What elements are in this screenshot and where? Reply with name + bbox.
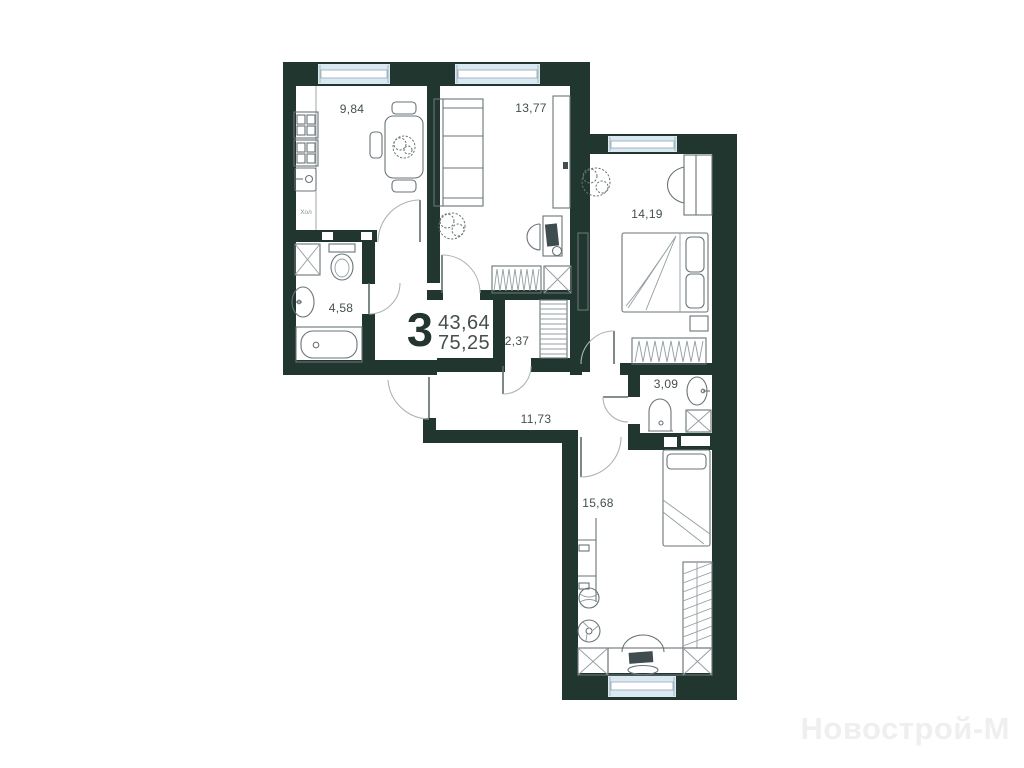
window-bedroom (608, 136, 677, 152)
label-bedroom-area: 14,19 (631, 207, 663, 221)
bedroom2-furniture (578, 450, 712, 675)
door-entrance (388, 377, 429, 419)
desk-icon (543, 216, 562, 256)
bookcase-icon (553, 96, 570, 208)
wardrobe-box-icon (578, 648, 608, 675)
rooms-count: 3 (407, 303, 433, 356)
apartment-summary: 3 43,64 75,25 (407, 303, 490, 356)
double-bed-icon (622, 233, 708, 312)
toilet-icon (329, 244, 355, 280)
bathtub-icon (296, 327, 362, 362)
window-kitchen (318, 64, 390, 84)
hanger-rail-icon (632, 338, 706, 364)
watermark-text: Новострой-М (801, 711, 1011, 746)
label-bathroom-area: 4,58 (329, 301, 354, 315)
fan-icon (578, 620, 600, 642)
wardrobe-icon (684, 155, 712, 215)
shelf-unit-icon (434, 99, 483, 206)
washing-machine-icon (295, 244, 320, 275)
floor-plan-svg: Хол (0, 0, 1024, 768)
door-bedroom-2 (581, 437, 621, 477)
vent-shaft (361, 232, 372, 240)
label-hallway-area: 11,73 (521, 412, 552, 426)
label-wardrobe-area: 2,37 (505, 334, 530, 348)
washing-machine-icon (686, 410, 711, 432)
window-living (455, 64, 540, 84)
wardrobe-room-furniture (540, 300, 567, 358)
duct-niche (681, 436, 710, 446)
vent-shaft (664, 437, 677, 447)
kitchen-sink-icon (295, 168, 316, 191)
label-kitchen-area: 9,84 (340, 102, 365, 116)
fridge-label: Хол (300, 209, 312, 216)
window-bedroom-2 (608, 676, 676, 697)
office-chair-icon (527, 224, 540, 250)
toilet-icon (648, 399, 673, 431)
vent-shaft (322, 232, 333, 240)
label-living-area: 13,77 (515, 101, 547, 115)
label-bedroom2-area: 15,68 (582, 496, 614, 510)
door-living (442, 255, 480, 293)
door-kitchen (378, 200, 420, 242)
floorplan-canvas: Хол (0, 0, 1024, 768)
door-wc (603, 397, 628, 422)
total-area: 75,25 (438, 332, 490, 354)
hanger-rail-icon (492, 266, 541, 293)
door-wardrobe (503, 366, 531, 394)
wardrobe-box-icon (683, 648, 712, 675)
nightstand-icon (690, 316, 708, 331)
wc-sink-icon (687, 377, 710, 405)
armchair-icon (668, 167, 685, 203)
wardrobe-hatched-icon (683, 562, 712, 648)
living-furniture (434, 96, 571, 293)
plant-icon (439, 213, 465, 239)
label-wc-area: 3,09 (654, 377, 679, 391)
living-area-total: 43,64 (438, 312, 490, 334)
chair-icon (622, 635, 664, 652)
desk-icon (608, 648, 683, 675)
bedroom-furniture (578, 155, 712, 364)
dining-table-icon (370, 102, 423, 192)
windows (318, 64, 677, 697)
wardrobe-box-icon (544, 266, 571, 293)
door-bathroom (369, 283, 400, 314)
stove-icon (294, 112, 318, 166)
single-bed-icon (663, 450, 710, 546)
